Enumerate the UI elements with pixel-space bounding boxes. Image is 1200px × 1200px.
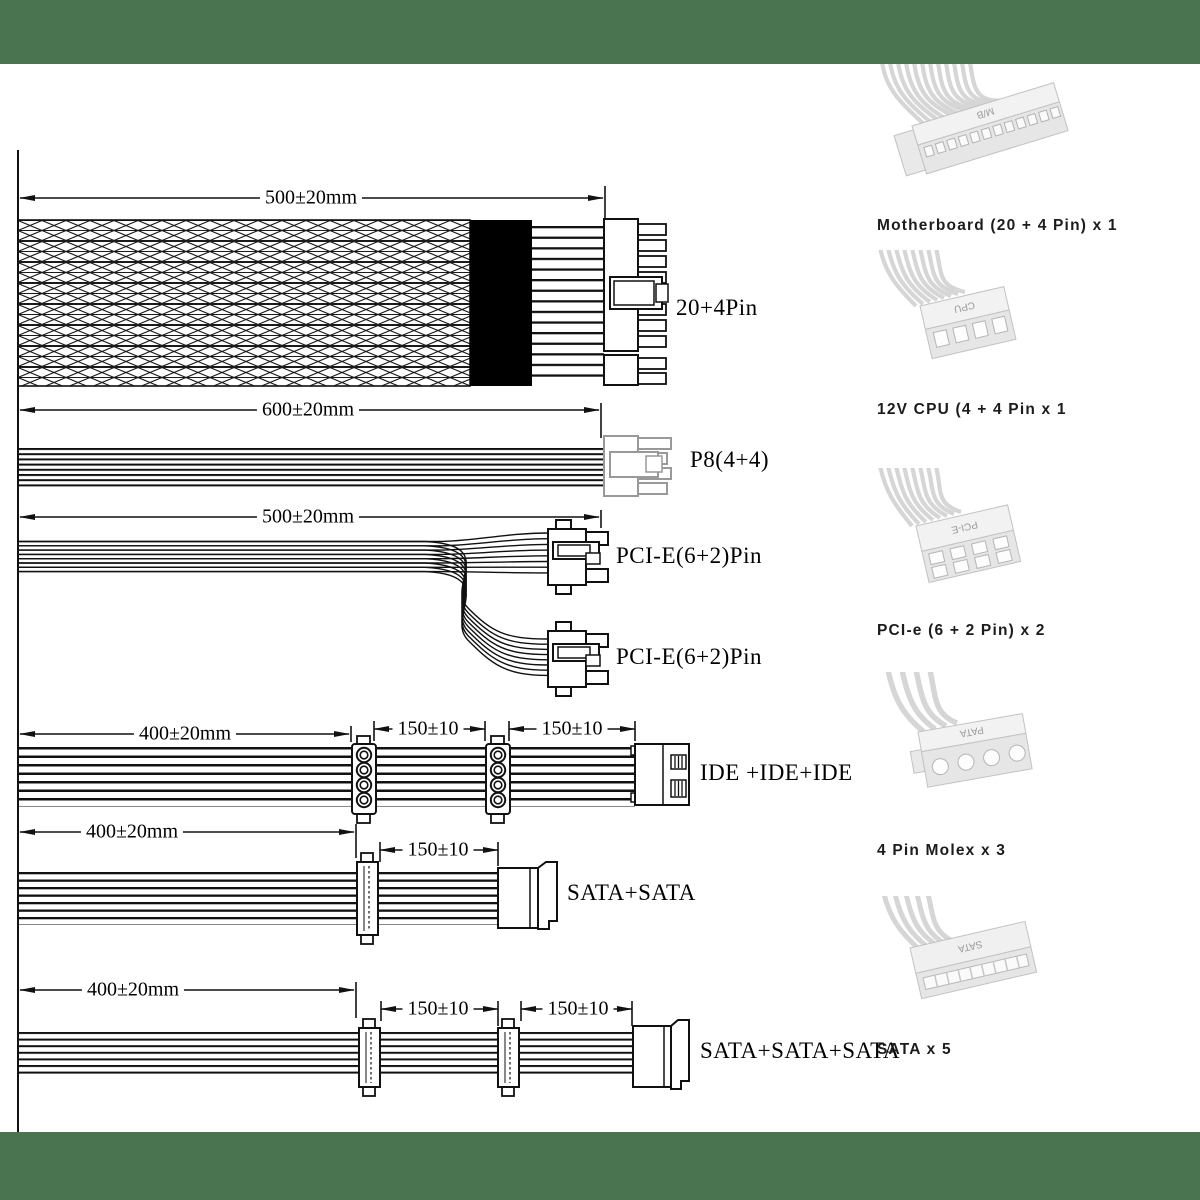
dim-label-ide-c: 150±10 (537, 718, 608, 741)
dim-label-pcie: 500±20mm (257, 506, 359, 529)
legend-photo-pcie: PCI-E (876, 468, 1066, 613)
dim-label-atx: 500±20mm (260, 187, 362, 210)
dim-label-sata3-c: 150±10 (543, 998, 614, 1021)
wire-bundle (880, 250, 965, 306)
connector-label-pcie-bottom: PCI-E(6+2)Pin (616, 644, 762, 670)
wire-bundle (880, 468, 961, 526)
legend-caption-cpu: 12V CPU (4 + 4 Pin x 1 (877, 401, 1067, 419)
atx-row-drawing (18, 186, 668, 386)
legend-photo-molex: PATA (876, 672, 1071, 838)
connector-label-p8: P8(4+4) (690, 447, 769, 473)
connector-label-sata2: SATA+SATA (567, 880, 696, 906)
connector-label-sata3: SATA+SATA+SATA (700, 1038, 900, 1064)
wire-bundle (888, 672, 957, 732)
dim-label-sata2-a: 400±20mm (81, 821, 183, 844)
pcie-row-drawing (18, 510, 608, 696)
dim-label-ide-b: 150±10 (393, 718, 464, 741)
connector-label-pcie-top: PCI-E(6+2)Pin (616, 543, 762, 569)
legend-photo-cpu: CPU (876, 250, 1066, 392)
legend-caption-molex: 4 Pin Molex x 3 (877, 842, 1006, 860)
legend-caption-pcie: PCI-e (6 + 2 Pin) x 2 (877, 622, 1046, 640)
connector-label-ide: IDE +IDE+IDE (700, 760, 853, 786)
legend-photo-motherboard: M/B (876, 64, 1088, 218)
dim-label-sata3-a: 400±20mm (82, 979, 184, 1002)
dim-label-sata3-b: 150±10 (403, 998, 474, 1021)
connector-label-atx: 20+4Pin (676, 295, 758, 321)
legend-photo-sata: SATA (876, 896, 1071, 1038)
legend-caption-motherboard: Motherboard (20 + 4 Pin) x 1 (877, 217, 1118, 235)
pcie-connector-top (548, 520, 608, 594)
pcie-connector-bottom (548, 622, 608, 696)
dim-label-p8: 600±20mm (257, 399, 359, 422)
dim-label-sata2-b: 150±10 (403, 839, 474, 862)
dim-label-ide-a: 400±20mm (134, 723, 236, 746)
legend-caption-sata: SATA x 5 (877, 1041, 952, 1059)
